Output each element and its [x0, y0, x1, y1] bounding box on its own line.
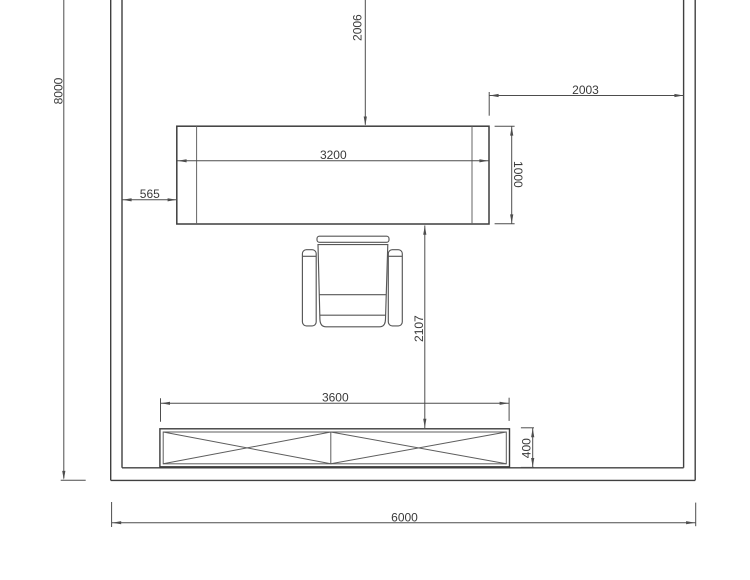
svg-text:2006: 2006: [351, 14, 365, 41]
svg-text:3200: 3200: [320, 148, 347, 162]
svg-text:2107: 2107: [412, 315, 426, 342]
svg-text:8000: 8000: [51, 77, 65, 104]
svg-text:400: 400: [520, 438, 534, 458]
svg-text:1000: 1000: [511, 161, 525, 188]
svg-text:3600: 3600: [322, 391, 349, 405]
svg-text:6000: 6000: [391, 511, 418, 525]
svg-text:565: 565: [140, 187, 160, 201]
svg-text:2003: 2003: [572, 83, 599, 97]
